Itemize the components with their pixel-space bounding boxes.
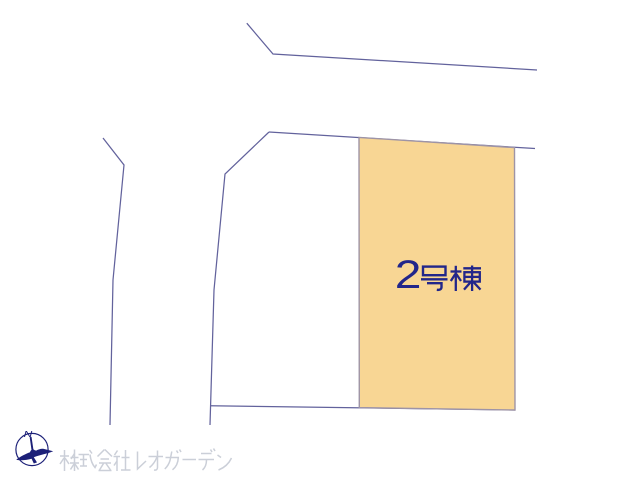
svg-text:2: 2 — [395, 252, 422, 296]
